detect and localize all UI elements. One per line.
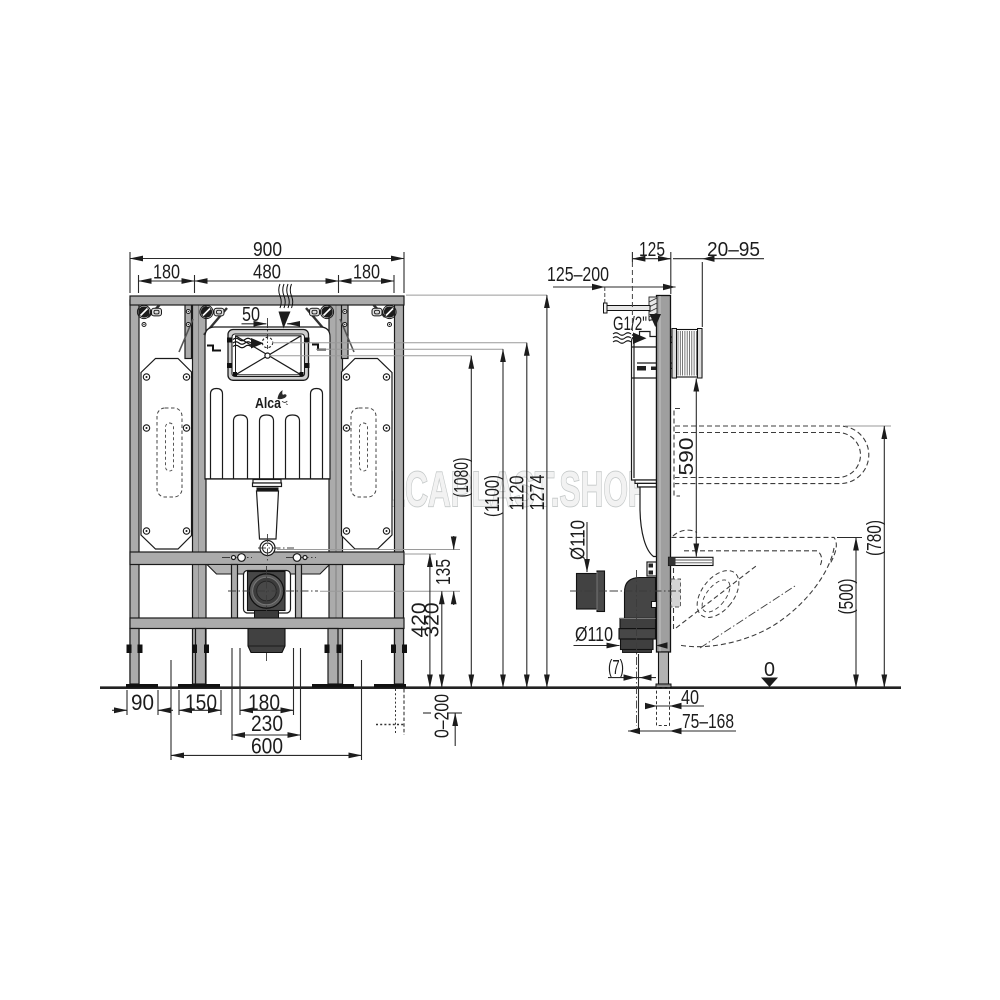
svg-text:0–200: 0–200 — [431, 694, 454, 738]
svg-text:480: 480 — [253, 261, 281, 284]
svg-text:75–168: 75–168 — [682, 710, 734, 733]
svg-text:180: 180 — [153, 261, 180, 284]
svg-text:Ø110: Ø110 — [567, 520, 590, 560]
svg-text:(500): (500) — [835, 579, 858, 615]
svg-text:900: 900 — [253, 238, 282, 261]
svg-text:Ø110: Ø110 — [575, 623, 613, 646]
svg-text:600: 600 — [251, 734, 283, 759]
svg-text:50: 50 — [242, 303, 260, 326]
svg-text:320: 320 — [421, 603, 444, 638]
svg-text:(1080): (1080) — [450, 458, 473, 498]
svg-text:125: 125 — [639, 238, 665, 261]
svg-text:(7): (7) — [608, 656, 624, 679]
svg-text:150: 150 — [185, 690, 217, 715]
svg-text:G1/2": G1/2" — [613, 314, 647, 335]
svg-text:20–95: 20–95 — [707, 238, 760, 261]
svg-text:230: 230 — [251, 711, 283, 736]
svg-text:135: 135 — [432, 559, 455, 585]
svg-text:590: 590 — [675, 438, 698, 476]
svg-text:90: 90 — [131, 690, 154, 715]
svg-text:(1100): (1100) — [481, 475, 504, 517]
svg-text:180: 180 — [353, 261, 380, 284]
svg-text:125–200: 125–200 — [547, 263, 609, 286]
svg-text:1274: 1274 — [526, 475, 549, 511]
svg-text:(780): (780) — [863, 520, 886, 556]
